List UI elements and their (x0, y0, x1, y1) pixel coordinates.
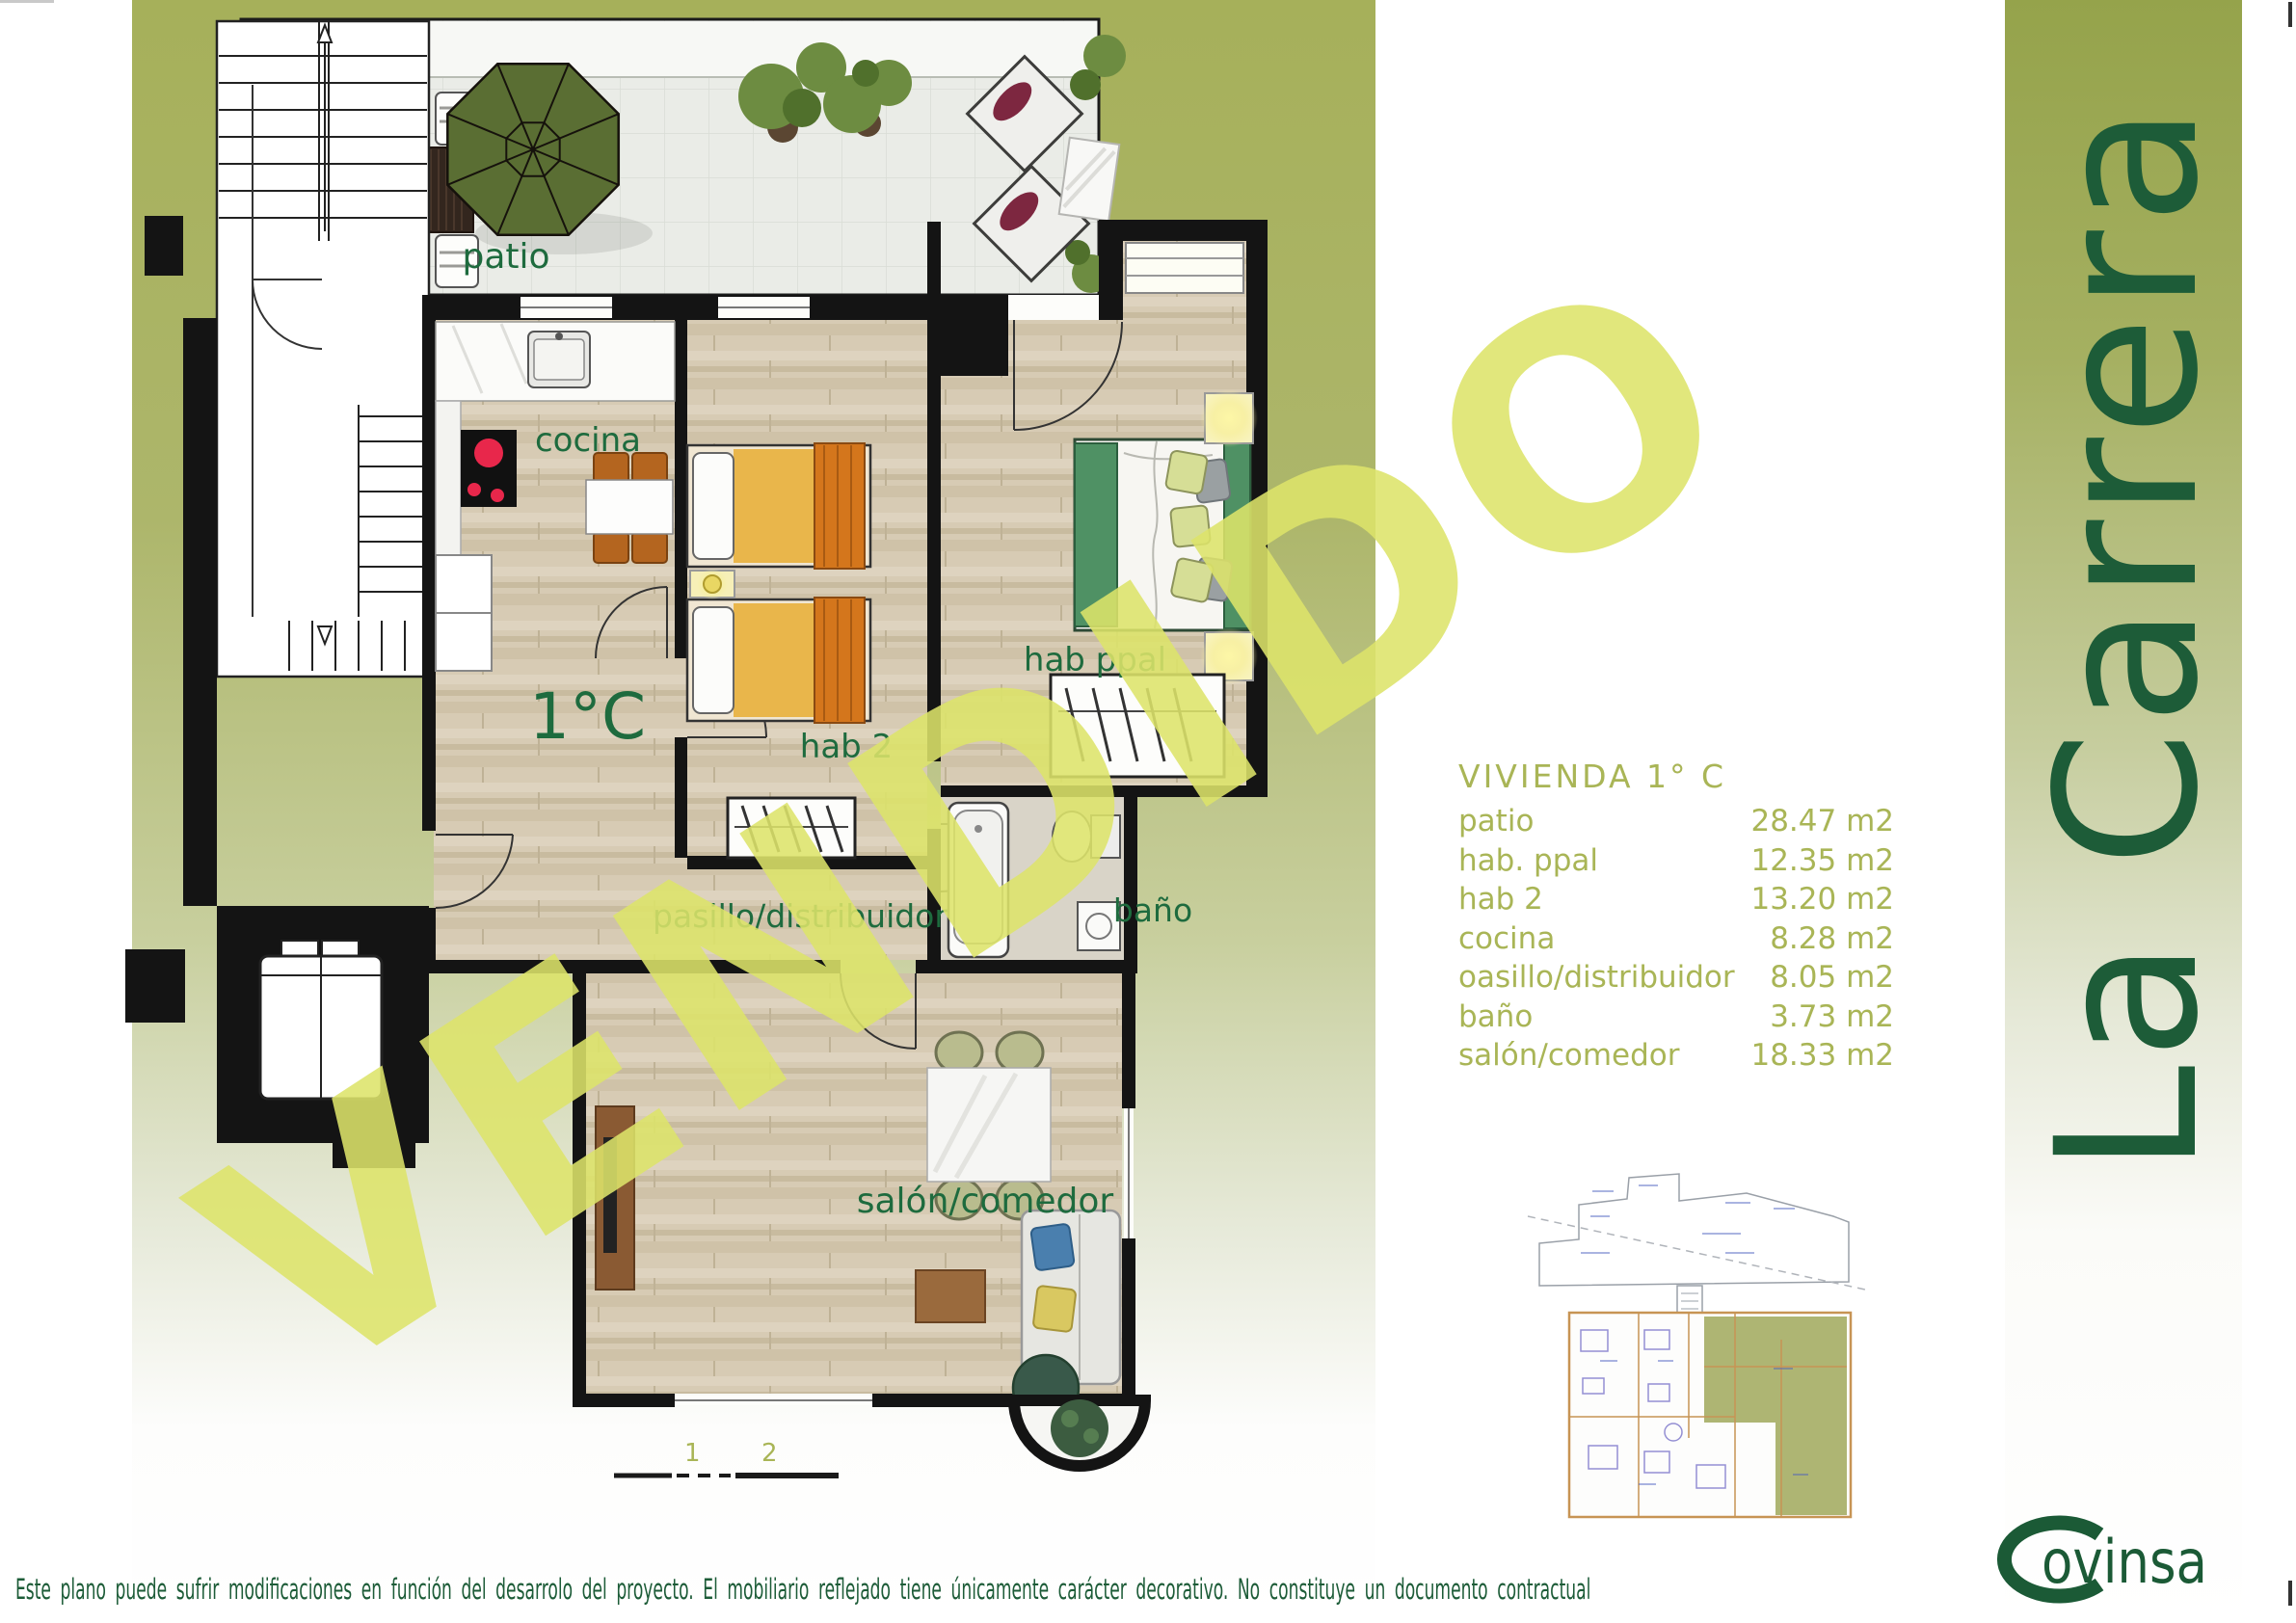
area-table: VIVIENDA 1° C patio28.47 m2hab. ppal12.3… (1458, 758, 1894, 1076)
area-row: baño3.73 m2 (1458, 998, 1894, 1037)
staircase (217, 21, 429, 677)
patio-mat (1059, 138, 1120, 221)
room-label-patio: patio (462, 237, 549, 277)
room-label-salon: salón/comedor (857, 1182, 1114, 1221)
kitchen-table (586, 453, 673, 563)
area-row-label: baño (1458, 999, 1533, 1034)
area-row-label: hab 2 (1458, 882, 1543, 917)
site-plan-thumbnail (1528, 1174, 1865, 1517)
brochure-page: patio (0, 0, 2296, 1623)
unit-label: 1°C (529, 679, 646, 754)
scale-bar: 1 2 (614, 1439, 839, 1476)
area-row-label: oasillo/distribuidor (1458, 960, 1735, 995)
area-row-value: 28.47 m2 (1750, 804, 1894, 838)
area-row-label: salón/comedor (1458, 1038, 1680, 1073)
nightstand-lamp (690, 569, 734, 599)
scale-tick-1: 1 (684, 1439, 701, 1468)
area-row: hab 213.20 m2 (1458, 880, 1894, 919)
area-row-value: 12.35 m2 (1750, 843, 1894, 878)
area-row-value: 8.05 m2 (1770, 960, 1894, 995)
area-row: salón/comedor18.33 m2 (1458, 1036, 1894, 1076)
area-row-label: hab. ppal (1458, 843, 1598, 878)
area-row-label: cocina (1458, 921, 1555, 956)
area-row-value: 3.73 m2 (1770, 999, 1894, 1034)
area-row: oasillo/distribuidor8.05 m2 (1458, 958, 1894, 998)
covinsa-logo: ovinsa (2004, 1523, 2207, 1597)
area-row-value: 18.33 m2 (1750, 1038, 1894, 1073)
area-row: hab. ppal12.35 m2 (1458, 841, 1894, 881)
coffee-table (916, 1270, 985, 1322)
area-table-title: VIVIENDA 1° C (1458, 758, 1894, 802)
plant (1051, 1399, 1108, 1457)
single-bed (687, 443, 870, 569)
area-table-rows: patio28.47 m2hab. ppal12.35 m2hab 213.20… (1458, 802, 1894, 1076)
area-row-value: 8.28 m2 (1770, 921, 1894, 956)
area-row-label: patio (1458, 804, 1534, 838)
area-row: cocina8.28 m2 (1458, 919, 1894, 959)
project-name-vertical: La Carrera (2013, 17, 2242, 1174)
scale-tick-2: 2 (761, 1439, 778, 1468)
disclaimer-text: Este plano puede sufrir modificaciones e… (15, 1573, 1590, 1606)
covinsa-logo-text: ovinsa (2042, 1527, 2207, 1597)
area-row-value: 13.20 m2 (1750, 882, 1894, 917)
area-row: patio28.47 m2 (1458, 802, 1894, 841)
room-label-cocina: cocina (535, 421, 641, 460)
